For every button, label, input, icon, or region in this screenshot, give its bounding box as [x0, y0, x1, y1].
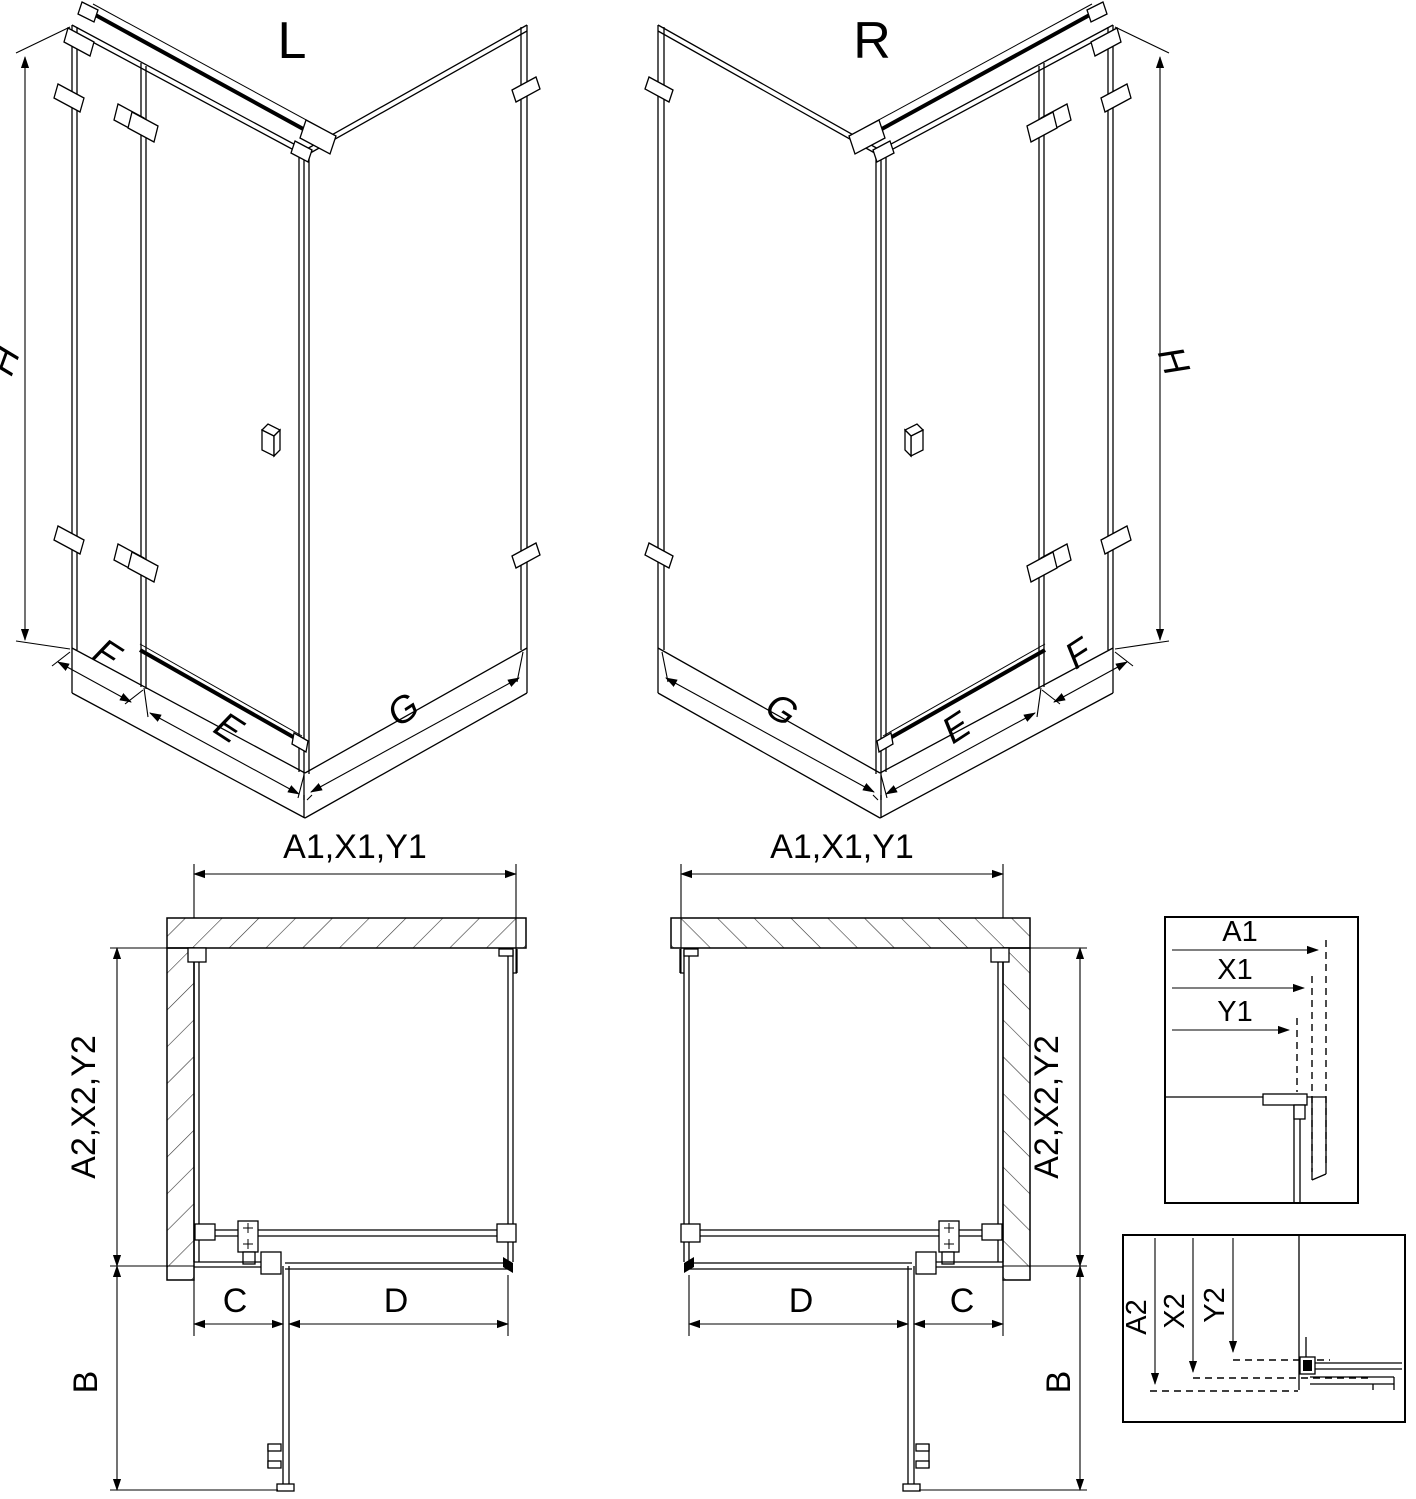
iso-left-dim-f: F	[86, 630, 129, 678]
plan-view-right: A1,X1,Y1 A2,X2,Y2 B C D	[671, 828, 1087, 1491]
plan-left-dim-b: B	[67, 1371, 105, 1394]
detail-depth-y2: Y2	[1199, 1287, 1231, 1322]
detail-width-y1: Y1	[1217, 996, 1252, 1028]
detail-width-x1: X1	[1217, 954, 1252, 986]
plan-right-dim-c: C	[950, 1282, 975, 1320]
iso-right-dim-h: H	[1150, 341, 1198, 380]
iso-left-title: L	[278, 12, 307, 70]
plan-left-dim-a1x1y1: A1,X1,Y1	[283, 828, 427, 866]
detail-width-a1: A1	[1222, 916, 1257, 948]
iso-right-title: R	[853, 12, 891, 70]
shower-enclosure-technical-drawing: L H F E G R H F E G A1,X1,Y1 A2,X2,Y2 B …	[0, 0, 1416, 1499]
plan-view-left: A1,X1,Y1 A2,X2,Y2 B C D	[65, 828, 526, 1491]
iso-view-left: L H F E G	[0, 2, 540, 818]
iso-left-dim-h: H	[0, 341, 28, 380]
plan-left-dim-d: D	[384, 1282, 409, 1320]
detail-box-depth: A2 X2 Y2	[1121, 1235, 1405, 1422]
plan-left-dim-a2x2y2: A2,X2,Y2	[65, 1035, 103, 1179]
detail-depth-a2: A2	[1121, 1299, 1153, 1334]
plan-right-dim-d: D	[789, 1282, 814, 1320]
plan-right-dim-a2x2y2: A2,X2,Y2	[1028, 1035, 1066, 1179]
detail-depth-x2: X2	[1159, 1293, 1191, 1328]
iso-right-dim-f: F	[1058, 629, 1101, 677]
plan-right-dim-a1x1y1: A1,X1,Y1	[770, 828, 914, 866]
plan-right-dim-b: B	[1040, 1371, 1078, 1394]
detail-box-width: A1 X1 Y1	[1165, 916, 1358, 1203]
plan-left-dim-c: C	[223, 1282, 248, 1320]
drawing-canvas: L H F E G R H F E G A1,X1,Y1 A2,X2,Y2 B …	[0, 0, 1416, 1499]
iso-view-right: R H F E G	[645, 2, 1198, 818]
